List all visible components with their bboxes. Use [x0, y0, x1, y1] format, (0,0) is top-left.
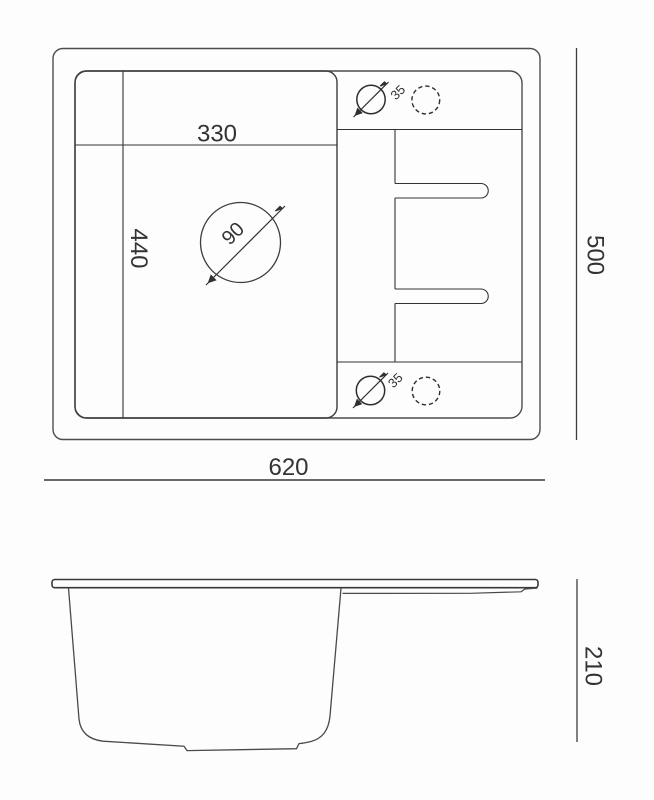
- svg-text:440: 440: [125, 228, 152, 268]
- svg-text:500: 500: [582, 235, 609, 275]
- svg-text:210: 210: [580, 646, 607, 686]
- svg-text:620: 620: [268, 454, 308, 481]
- svg-text:330: 330: [197, 121, 237, 148]
